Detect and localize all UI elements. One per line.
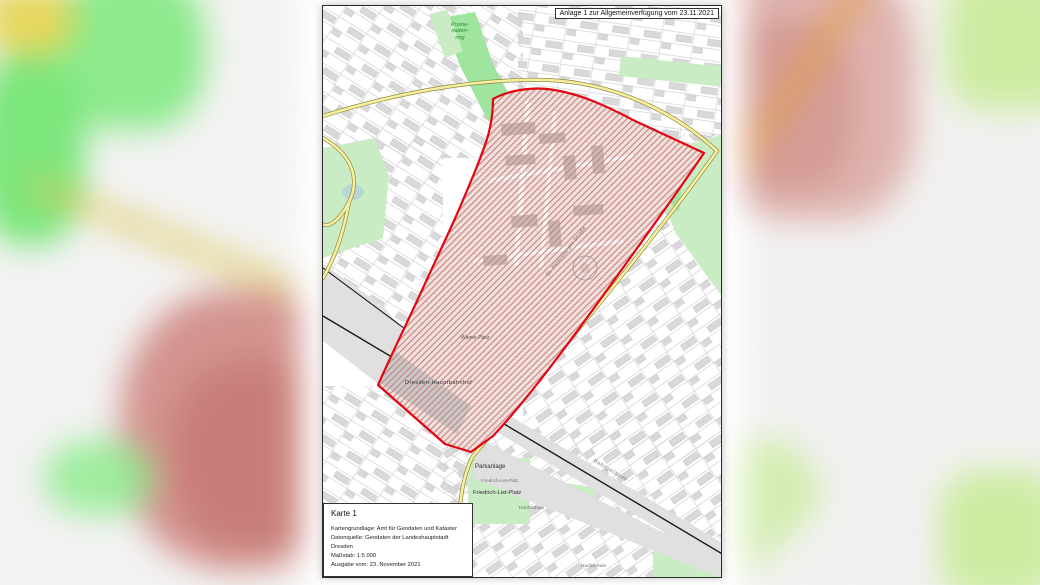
label-hochschule-2: Hochschule: [581, 564, 606, 569]
legend-box: Karte 1 Kartengrundlage: Amt für Geodate…: [323, 503, 473, 577]
label-friedrich-list-platz-small: Friedrich-List-Platz: [481, 478, 519, 483]
label-wiener-platz: Wiener Platz: [461, 335, 489, 341]
label-hochschule-1: Hochschule: [519, 506, 544, 511]
bg-park-blob: [0, 55, 85, 245]
legend-line-massstab: Maßstab: 1:5 000: [331, 552, 467, 561]
label-friedrich-list-platz: Friedrich-List-Platz: [473, 490, 521, 496]
label-promenadenring: Prome- naden- ring: [451, 22, 469, 41]
bg-park-blob: [940, 470, 1040, 585]
legend-title: Karte 1: [331, 509, 467, 518]
label-parkanlage: Parkanlage: [475, 464, 505, 470]
map-frame-title: Anlage 1 zur Allgemeinverfügung vom 23.1…: [555, 8, 719, 19]
legend-line-kartengrundlage: Kartengrundlage: Amt für Geodaten und Ka…: [331, 525, 467, 534]
label-promenadenring-line3: ring: [451, 35, 469, 41]
map-canvas: [323, 6, 722, 578]
bg-park-blob: [945, 0, 1040, 110]
screenshot-stage: Anlage 1 zur Allgemeinverfügung vom 23.1…: [0, 0, 1040, 585]
bg-park-blob: [45, 440, 155, 515]
bg-road-blob: [0, 0, 75, 55]
label-promenadenring-line2: naden-: [451, 28, 469, 34]
label-dresden-hauptbahnhof: Dresden-Hauptbahnhof: [405, 380, 472, 386]
map-panel: Anlage 1 zur Allgemeinverfügung vom 23.1…: [322, 5, 722, 578]
legend-line-ausgabe: Ausgabe vom: 23. November 2021: [331, 561, 467, 570]
legend-line-datenquelle: Datenquelle: Geodaten der Landeshauptsta…: [331, 534, 467, 552]
